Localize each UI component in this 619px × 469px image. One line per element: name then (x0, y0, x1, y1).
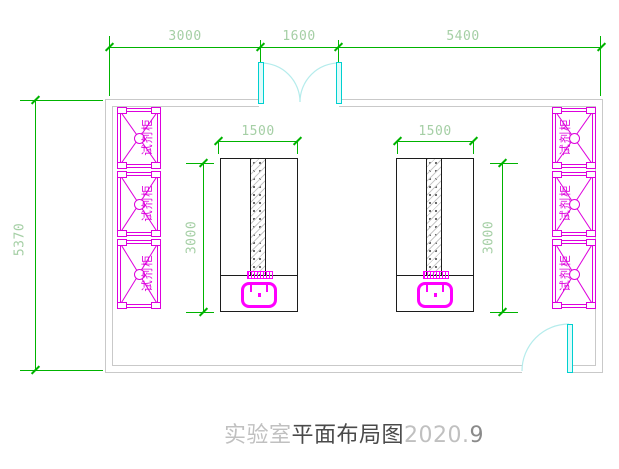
dim-label-3000-top: 3000 (155, 29, 215, 44)
bench-hatched-column (426, 159, 442, 275)
faucet-symbol (247, 271, 273, 279)
bench-left-width-ext-b (297, 142, 298, 154)
title-head: 实验室 (224, 423, 292, 448)
bench-hatched-column (250, 159, 266, 275)
dim-label-bench-right-width: 1500 (405, 124, 465, 139)
left-dimension-line (35, 100, 36, 371)
cabinet-joint (552, 230, 562, 237)
bench-right-depth-ext-b (490, 312, 518, 313)
sink-symbol (241, 282, 277, 308)
cabinet-label: 试剂柜 (140, 175, 154, 231)
reagent-cabinet-left-3: 试剂柜 (117, 240, 161, 308)
reagent-cabinet-left-2: 试剂柜 (117, 172, 161, 236)
top-door-leaf-right (336, 62, 342, 104)
bench-right-width-ext-b (473, 142, 474, 154)
cabinet-joint (586, 107, 596, 114)
cabinet-joint (117, 107, 127, 114)
cabinet-joint (151, 230, 161, 237)
title-year: 2020. (404, 423, 469, 448)
sink-drain-dot (434, 293, 437, 297)
top-dimension-line (109, 47, 601, 48)
cabinet-joint (586, 230, 596, 237)
reagent-cabinet-right-2: 试剂柜 (552, 172, 596, 236)
cabinet-label: 试剂柜 (558, 245, 572, 301)
bench-left-depth-dim-line (203, 163, 204, 312)
cabinet-joint (586, 171, 596, 178)
lab-bench-right (396, 158, 474, 312)
bench-right-width-dim-line (397, 141, 473, 142)
title-middle: 平面布局图 (292, 423, 405, 448)
bench-left-width-ext-a (218, 142, 219, 154)
top-door-leaf-left (258, 62, 264, 104)
cabinet-joint (117, 302, 127, 309)
bottom-door-leaf (567, 324, 573, 373)
dim-label-5400-top: 5400 (433, 29, 493, 44)
sink-drain-dot (258, 293, 261, 297)
cabinet-joint (117, 162, 127, 169)
cabinet-label: 试剂柜 (558, 175, 572, 231)
bottom-door-opening (522, 362, 571, 374)
sink-tap-tick (250, 285, 252, 292)
sink-tap-tick (266, 285, 268, 292)
cabinet-joint (117, 171, 127, 178)
drawing-title: 实验室平面布局图2020.9 (224, 417, 484, 449)
dim-label-bench-left-depth: 3000 (185, 208, 200, 268)
title-tail: 9 (470, 423, 485, 448)
cabinet-label: 试剂柜 (140, 109, 154, 165)
cabinet-joint (586, 302, 596, 309)
bench-right-depth-dim-line (502, 163, 503, 312)
sink-tap-tick (426, 285, 428, 292)
cabinet-label: 试剂柜 (558, 109, 572, 165)
reagent-cabinet-right-3: 试剂柜 (552, 240, 596, 308)
cabinet-joint (586, 162, 596, 169)
top-door-opening (259, 97, 339, 108)
bench-right-width-ext-a (397, 142, 398, 154)
dim-label-room-height: 5370 (13, 210, 28, 270)
faucet-symbol (423, 271, 449, 279)
dim-label-1600-top: 1600 (269, 29, 329, 44)
sink-symbol (417, 282, 453, 308)
cabinet-joint (117, 239, 127, 246)
bench-left-width-dim-line (218, 141, 297, 142)
cabinet-label: 试剂柜 (140, 245, 154, 301)
cabinet-joint (151, 302, 161, 309)
floor-plan-canvas: 试剂柜 试剂柜 试剂柜 试剂柜 试剂柜 试剂柜 (0, 0, 619, 469)
reagent-cabinet-right-1: 试剂柜 (552, 108, 596, 168)
dim-label-bench-left-width: 1500 (228, 124, 288, 139)
lab-bench-left (220, 158, 298, 312)
reagent-cabinet-left-1: 试剂柜 (117, 108, 161, 168)
cabinet-joint (552, 302, 562, 309)
bench-right-depth-ext-a (490, 163, 518, 164)
sink-tap-tick (442, 285, 444, 292)
cabinet-joint (586, 239, 596, 246)
dim-tick (597, 42, 606, 51)
dim-label-bench-right-depth: 3000 (482, 208, 497, 268)
cabinet-joint (117, 230, 127, 237)
